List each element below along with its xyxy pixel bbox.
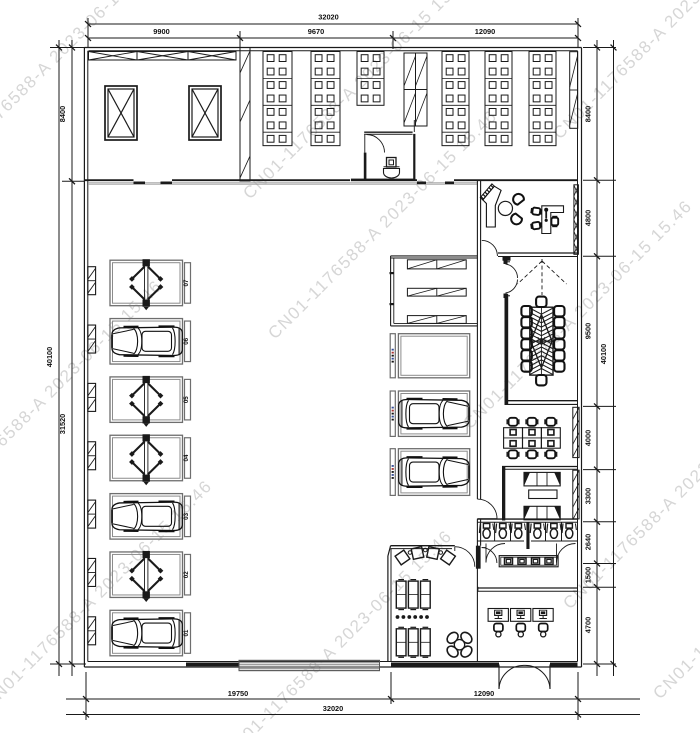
svg-text:9900: 9900 bbox=[153, 27, 169, 36]
svg-text:07: 07 bbox=[183, 279, 190, 286]
svg-text:03: 03 bbox=[183, 512, 190, 519]
svg-text:31520: 31520 bbox=[58, 414, 67, 435]
svg-text:8400: 8400 bbox=[584, 106, 593, 122]
svg-text:4700: 4700 bbox=[584, 617, 593, 633]
svg-text:12090: 12090 bbox=[475, 27, 496, 36]
svg-text:3300: 3300 bbox=[584, 488, 593, 504]
svg-text:2640: 2640 bbox=[584, 534, 593, 550]
svg-text:9500: 9500 bbox=[584, 323, 593, 339]
svg-text:12090: 12090 bbox=[474, 689, 495, 698]
svg-text:05: 05 bbox=[183, 396, 190, 403]
svg-text:02: 02 bbox=[183, 571, 190, 578]
svg-text:04: 04 bbox=[183, 454, 190, 461]
svg-text:9670: 9670 bbox=[308, 27, 324, 36]
svg-text:40100: 40100 bbox=[45, 347, 54, 368]
svg-text:1500: 1500 bbox=[584, 567, 593, 583]
svg-text:32020: 32020 bbox=[318, 13, 339, 22]
svg-text:32020: 32020 bbox=[323, 704, 344, 713]
svg-text:19750: 19750 bbox=[228, 689, 249, 698]
svg-text:4000: 4000 bbox=[584, 430, 593, 446]
svg-text:8400: 8400 bbox=[58, 106, 67, 122]
svg-text:40100: 40100 bbox=[599, 344, 608, 365]
svg-text:06: 06 bbox=[183, 337, 190, 344]
svg-text:4800: 4800 bbox=[584, 210, 593, 226]
svg-text:01: 01 bbox=[183, 629, 190, 636]
